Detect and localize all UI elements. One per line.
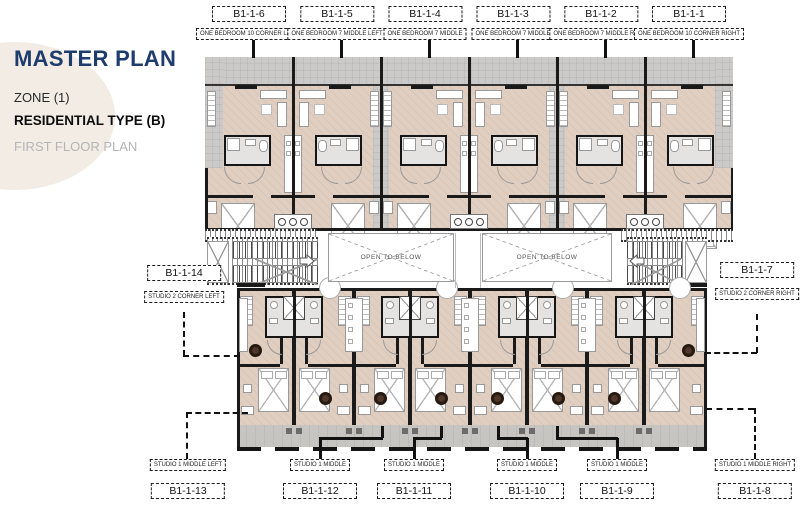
unit-B1-1-5 xyxy=(293,85,381,230)
callout-B1-1-12: STUDIO 1 MIDDLE B1-1-12 xyxy=(283,459,357,499)
sofa xyxy=(337,406,350,415)
leader-dashed xyxy=(186,412,248,414)
grid-line xyxy=(455,233,456,288)
stove-counter xyxy=(450,214,488,229)
door-arc xyxy=(345,167,362,184)
stove-counter xyxy=(274,214,312,229)
counter-unit xyxy=(462,141,467,146)
wardrobe xyxy=(207,91,216,127)
interior-wall xyxy=(308,364,354,367)
planter xyxy=(462,428,468,434)
bed xyxy=(299,368,330,412)
bed xyxy=(649,368,680,412)
pillow xyxy=(534,371,546,379)
planter xyxy=(296,428,302,434)
unit-type: ONE BEDROOM 10 CORNER LEFT xyxy=(196,28,302,40)
door-arc xyxy=(321,167,338,184)
leader-line xyxy=(381,426,384,438)
sofa xyxy=(260,90,287,99)
table xyxy=(491,392,504,405)
counter-unit xyxy=(464,327,469,332)
planter xyxy=(286,428,292,434)
door-arc xyxy=(600,167,617,184)
pillow xyxy=(391,371,403,379)
counter-unit xyxy=(647,151,652,156)
leader-dashed xyxy=(705,352,757,354)
callout-B1-1-8: STUDIO 1 MIDDLE RIGHT B1-1-8 xyxy=(715,459,795,499)
counter-unit xyxy=(464,315,469,320)
unit-code: B1-1-11 xyxy=(377,483,451,499)
pillow xyxy=(611,371,623,379)
armchair xyxy=(383,201,393,214)
toilet xyxy=(386,301,394,309)
party-wall xyxy=(644,85,647,230)
bed xyxy=(258,368,289,412)
counter-unit xyxy=(295,141,300,146)
bathroom xyxy=(224,135,271,166)
party-wall xyxy=(292,57,295,85)
planter xyxy=(412,428,418,434)
bathroom-wall xyxy=(643,296,646,338)
interior-wall xyxy=(541,364,587,367)
page-title: MASTER PLAN xyxy=(14,46,176,72)
toilet xyxy=(503,301,511,309)
shower xyxy=(579,138,592,151)
sink xyxy=(245,139,256,146)
pillow xyxy=(548,371,560,379)
armchair xyxy=(692,384,701,393)
bedroom-wall xyxy=(293,195,315,198)
shower xyxy=(522,138,535,151)
bathroom xyxy=(400,135,447,166)
sofa xyxy=(651,90,678,99)
bedroom-wall xyxy=(271,195,293,198)
open-to-below-right: OPEN TO BELOW xyxy=(482,233,612,282)
wall-segment xyxy=(237,283,265,287)
direction-arrow-icon xyxy=(629,254,645,268)
bedroom-wall xyxy=(623,195,645,198)
sofa xyxy=(651,102,661,127)
door-arc xyxy=(673,167,690,184)
toilet xyxy=(660,301,668,309)
bedroom-wall xyxy=(469,195,491,198)
leader-line xyxy=(413,438,416,459)
planter xyxy=(346,428,352,434)
table xyxy=(374,392,387,405)
callout-B1-1-13: STUDIO 1 MIDDLE LEFT B1-1-13 xyxy=(150,459,226,499)
leader-line xyxy=(556,437,618,440)
planter xyxy=(589,428,595,434)
shower xyxy=(227,138,240,151)
leader-line xyxy=(497,437,528,440)
toilet xyxy=(259,140,268,152)
sofa xyxy=(690,406,703,415)
leader-dashed xyxy=(183,312,185,356)
counter-unit xyxy=(581,315,586,320)
leader-line xyxy=(616,438,619,459)
wardrobe xyxy=(383,91,392,127)
stove-counter xyxy=(626,214,664,229)
coffee-table xyxy=(437,104,448,115)
sink xyxy=(421,139,432,146)
callout-B1-1-9: STUDIO 1 MIDDLE B1-1-9 xyxy=(580,459,654,499)
unit-code: B1-1-7 xyxy=(720,262,794,278)
sofa xyxy=(475,90,502,99)
kitchen-counter xyxy=(578,298,596,352)
burner xyxy=(630,218,638,226)
counter-unit xyxy=(462,151,467,156)
bedroom-wall xyxy=(557,195,605,198)
burner xyxy=(454,218,462,226)
table xyxy=(552,392,565,405)
bedroom-wall xyxy=(645,195,667,198)
balcony-railing xyxy=(237,447,707,451)
leader-line xyxy=(319,438,322,459)
callout-B1-1-7: B1-1-7 STUDIO 2 CORNER RIGHT xyxy=(715,262,799,300)
coffee-table xyxy=(314,104,325,115)
grid-line xyxy=(480,233,481,288)
stair-block-right xyxy=(627,237,707,285)
pillow xyxy=(625,371,637,379)
armchair xyxy=(243,384,252,393)
counter-unit xyxy=(348,339,353,344)
unit-code: B1-1-13 xyxy=(151,483,225,499)
toilet xyxy=(620,301,628,309)
unit-code: B1-1-2 xyxy=(564,6,638,22)
callout-B1-1-14: B1-1-14 STUDIO 2 CORNER LEFT xyxy=(144,265,224,303)
table xyxy=(682,344,695,357)
sink xyxy=(597,139,608,146)
burner xyxy=(289,218,297,226)
unit-type: ONE BEDROOM 7 MIDDLE xyxy=(383,28,466,40)
open-to-below-label: OPEN TO BELOW xyxy=(517,254,578,261)
unit-B1-1-3 xyxy=(469,85,557,230)
door-arc xyxy=(697,167,714,184)
direction-arrow-icon xyxy=(299,254,315,268)
unit-code: B1-1-14 xyxy=(147,265,221,281)
toilet xyxy=(310,301,318,309)
unit-code: B1-1-1 xyxy=(652,6,726,22)
tv-wall xyxy=(505,85,527,89)
sink xyxy=(385,318,394,324)
pillow xyxy=(508,371,520,379)
bathroom-wall xyxy=(409,296,412,338)
counter-unit xyxy=(348,303,353,308)
callout-B1-1-1: B1-1-1 ONE BEDROOM 10 CORNER RIGHT xyxy=(634,6,744,40)
unit-type: ONE BEDROOM 7 MIDDLE LEFT xyxy=(287,28,386,40)
toilet xyxy=(426,301,434,309)
sofa xyxy=(277,102,287,127)
kitchen-counter xyxy=(239,298,248,352)
bathroom xyxy=(667,135,714,166)
planter xyxy=(636,428,642,434)
tv-wall xyxy=(681,85,703,89)
outer-wall xyxy=(731,168,734,230)
wardrobe xyxy=(559,91,568,127)
sink xyxy=(330,139,341,146)
unit-type: STUDIO 1 MIDDLE LEFT xyxy=(150,459,226,471)
sink xyxy=(269,318,278,324)
callout-B1-1-5: B1-1-5 ONE BEDROOM 7 MIDDLE LEFT xyxy=(287,6,386,40)
armchair xyxy=(360,384,369,393)
bedroom-wall xyxy=(333,195,381,198)
armchair xyxy=(207,201,217,214)
party-wall xyxy=(292,85,295,230)
counter-unit xyxy=(471,151,476,156)
bed xyxy=(491,368,522,412)
armchair xyxy=(455,384,464,393)
sink xyxy=(660,318,669,324)
unit-B1-1-1 xyxy=(645,85,733,230)
bed xyxy=(608,368,639,412)
shower xyxy=(403,138,416,151)
floor-plan-sheet: MASTER PLAN ZONE (1) RESIDENTIAL TYPE (B… xyxy=(0,0,800,514)
counter-unit xyxy=(348,327,353,332)
toilet xyxy=(435,140,444,152)
sofa xyxy=(436,90,463,99)
top-band-one-bedroom-units xyxy=(205,57,733,247)
coffee-table xyxy=(490,104,501,115)
party-wall xyxy=(380,85,383,230)
planter xyxy=(519,428,525,434)
armchair xyxy=(369,201,379,214)
counter-unit xyxy=(286,141,291,146)
pillow xyxy=(275,371,287,379)
door-arc xyxy=(424,167,441,184)
sofa xyxy=(453,102,463,127)
open-to-below-label: OPEN TO BELOW xyxy=(361,254,422,261)
sink xyxy=(619,318,628,324)
leader-line xyxy=(692,40,695,58)
interior-wall xyxy=(237,364,280,367)
party-wall xyxy=(468,85,471,230)
sofa xyxy=(453,406,466,415)
unit-type: ONE BEDROOM 10 CORNER RIGHT xyxy=(634,28,744,40)
burner xyxy=(641,218,649,226)
armchair xyxy=(339,384,348,393)
table xyxy=(435,392,448,405)
wardrobe xyxy=(722,91,731,127)
unit-B1-1-6 xyxy=(205,85,293,230)
unit-type: STUDIO 2 CORNER RIGHT xyxy=(715,288,799,300)
armchair xyxy=(476,384,485,393)
tv-wall xyxy=(235,85,257,89)
coffee-table xyxy=(666,104,677,115)
bathroom xyxy=(576,135,623,166)
leader-dashed xyxy=(754,408,756,459)
unit-type: ONE BEDROOM 7 MIDDLE xyxy=(471,28,554,40)
bathroom xyxy=(491,135,538,166)
planter xyxy=(356,428,362,434)
bed xyxy=(415,368,446,412)
unit-type: STUDIO 1 MIDDLE xyxy=(384,459,444,471)
unit-type: STUDIO 2 CORNER LEFT xyxy=(144,291,224,303)
burner xyxy=(278,218,286,226)
table xyxy=(608,392,621,405)
unit-type: STUDIO 1 MIDDLE xyxy=(290,459,350,471)
interior-wall xyxy=(470,364,513,367)
leader-line xyxy=(556,426,559,438)
leader-line xyxy=(340,40,343,58)
callout-B1-1-3: B1-1-3 ONE BEDROOM 7 MIDDLE xyxy=(471,6,554,40)
bottom-band-studio-units xyxy=(237,288,707,452)
leader-dashed xyxy=(706,408,754,410)
interior-wall xyxy=(424,364,470,367)
shower xyxy=(698,138,711,151)
sofa xyxy=(591,406,604,415)
burner xyxy=(652,218,660,226)
armchair xyxy=(545,201,555,214)
counter-unit xyxy=(348,315,353,320)
bedroom-wall xyxy=(447,195,469,198)
elevator xyxy=(685,241,707,283)
bedroom-wall xyxy=(685,195,733,198)
callout-B1-1-10: STUDIO 1 MIDDLE B1-1-10 xyxy=(490,459,564,499)
counter-unit xyxy=(464,303,469,308)
leader-line xyxy=(604,40,607,58)
tv-wall xyxy=(587,85,609,89)
door-arc xyxy=(248,167,265,184)
counter-unit xyxy=(581,327,586,332)
door-arc xyxy=(224,167,241,184)
party-wall xyxy=(380,57,383,85)
unit-code: B1-1-6 xyxy=(212,6,286,22)
door-arc xyxy=(497,167,514,184)
unit-code: B1-1-12 xyxy=(283,483,357,499)
sink xyxy=(506,139,517,146)
shower xyxy=(346,138,359,151)
planter xyxy=(579,428,585,434)
bed xyxy=(374,368,405,412)
pillow xyxy=(417,371,429,379)
burner xyxy=(300,218,308,226)
unit-code: B1-1-9 xyxy=(580,483,654,499)
leader-dashed xyxy=(756,314,758,353)
sofa xyxy=(299,90,326,99)
leader-dashed xyxy=(183,355,240,357)
leader-line xyxy=(252,40,255,58)
leader-line xyxy=(516,40,519,58)
counter-unit xyxy=(286,151,291,156)
coffee-table xyxy=(261,104,272,115)
sink xyxy=(426,318,435,324)
table xyxy=(319,392,332,405)
sink xyxy=(682,139,693,146)
counter-unit xyxy=(464,339,469,344)
tv-wall xyxy=(329,85,351,89)
toilet xyxy=(270,301,278,309)
leader-line xyxy=(497,426,500,438)
leader-dashed xyxy=(186,412,188,459)
planter xyxy=(402,428,408,434)
bedroom-wall xyxy=(381,195,429,198)
toilet xyxy=(543,301,551,309)
pillow xyxy=(315,371,327,379)
burner xyxy=(476,218,484,226)
door-arc xyxy=(521,167,538,184)
leader-line xyxy=(428,40,431,58)
armchair xyxy=(593,384,602,393)
planter xyxy=(529,428,535,434)
kitchen-counter xyxy=(461,298,479,352)
sofa xyxy=(475,102,485,127)
pillow xyxy=(665,371,677,379)
armchair xyxy=(559,201,569,214)
planter xyxy=(646,428,652,434)
armchair xyxy=(572,384,581,393)
pillow xyxy=(301,371,313,379)
bed xyxy=(532,368,563,412)
kitchen-counter xyxy=(696,298,705,352)
counter-unit xyxy=(581,339,586,344)
toilet xyxy=(670,140,679,152)
callout-B1-1-6: B1-1-6 ONE BEDROOM 10 CORNER LEFT xyxy=(196,6,302,40)
unit-B1-1-2 xyxy=(557,85,645,230)
sofa xyxy=(299,102,309,127)
open-to-below-left: OPEN TO BELOW xyxy=(328,233,454,282)
leader-line xyxy=(526,438,529,459)
counter-unit xyxy=(581,303,586,308)
sofa xyxy=(474,406,487,415)
counter-unit xyxy=(295,151,300,156)
pillow xyxy=(431,371,443,379)
pillow xyxy=(494,371,506,379)
leader-line xyxy=(413,437,442,440)
leader-line xyxy=(440,426,443,438)
unit-code: B1-1-5 xyxy=(300,6,374,22)
unit-code: B1-1-8 xyxy=(718,483,792,499)
interior-wall xyxy=(354,364,396,367)
zone-label: ZONE (1) xyxy=(14,90,70,105)
bedroom-wall xyxy=(509,195,557,198)
interior-wall xyxy=(658,364,707,367)
counter-unit xyxy=(471,141,476,146)
bedroom-wall xyxy=(205,195,253,198)
wardrobe xyxy=(370,91,379,127)
outer-wall xyxy=(205,168,208,230)
bathroom xyxy=(315,135,362,166)
unit-code: B1-1-10 xyxy=(490,483,564,499)
sofa xyxy=(612,90,639,99)
pillow xyxy=(377,371,389,379)
sofa xyxy=(358,406,371,415)
planter xyxy=(472,428,478,434)
counter-unit xyxy=(647,141,652,146)
floor-label: FIRST FLOOR PLAN xyxy=(14,139,137,154)
sofa xyxy=(629,102,639,127)
entry-notch xyxy=(669,277,691,299)
sink xyxy=(310,318,319,324)
sofa xyxy=(570,406,583,415)
bathroom-wall xyxy=(526,296,529,338)
counter-unit xyxy=(638,151,643,156)
unit-type: STUDIO 1 MIDDLE xyxy=(497,459,557,471)
coffee-table xyxy=(613,104,624,115)
table xyxy=(249,344,262,357)
unit-type: STUDIO 1 MIDDLE RIGHT xyxy=(715,459,795,471)
kitchen-counter xyxy=(345,298,363,352)
wardrobe xyxy=(546,91,555,127)
burner xyxy=(465,218,473,226)
toilet xyxy=(611,140,620,152)
party-wall xyxy=(644,57,647,85)
party-wall xyxy=(556,57,559,85)
callout-B1-1-4: B1-1-4 ONE BEDROOM 7 MIDDLE xyxy=(383,6,466,40)
sink xyxy=(543,318,552,324)
unit-type: STUDIO 1 MIDDLE xyxy=(587,459,647,471)
toilet xyxy=(318,140,327,152)
door-arc xyxy=(576,167,593,184)
